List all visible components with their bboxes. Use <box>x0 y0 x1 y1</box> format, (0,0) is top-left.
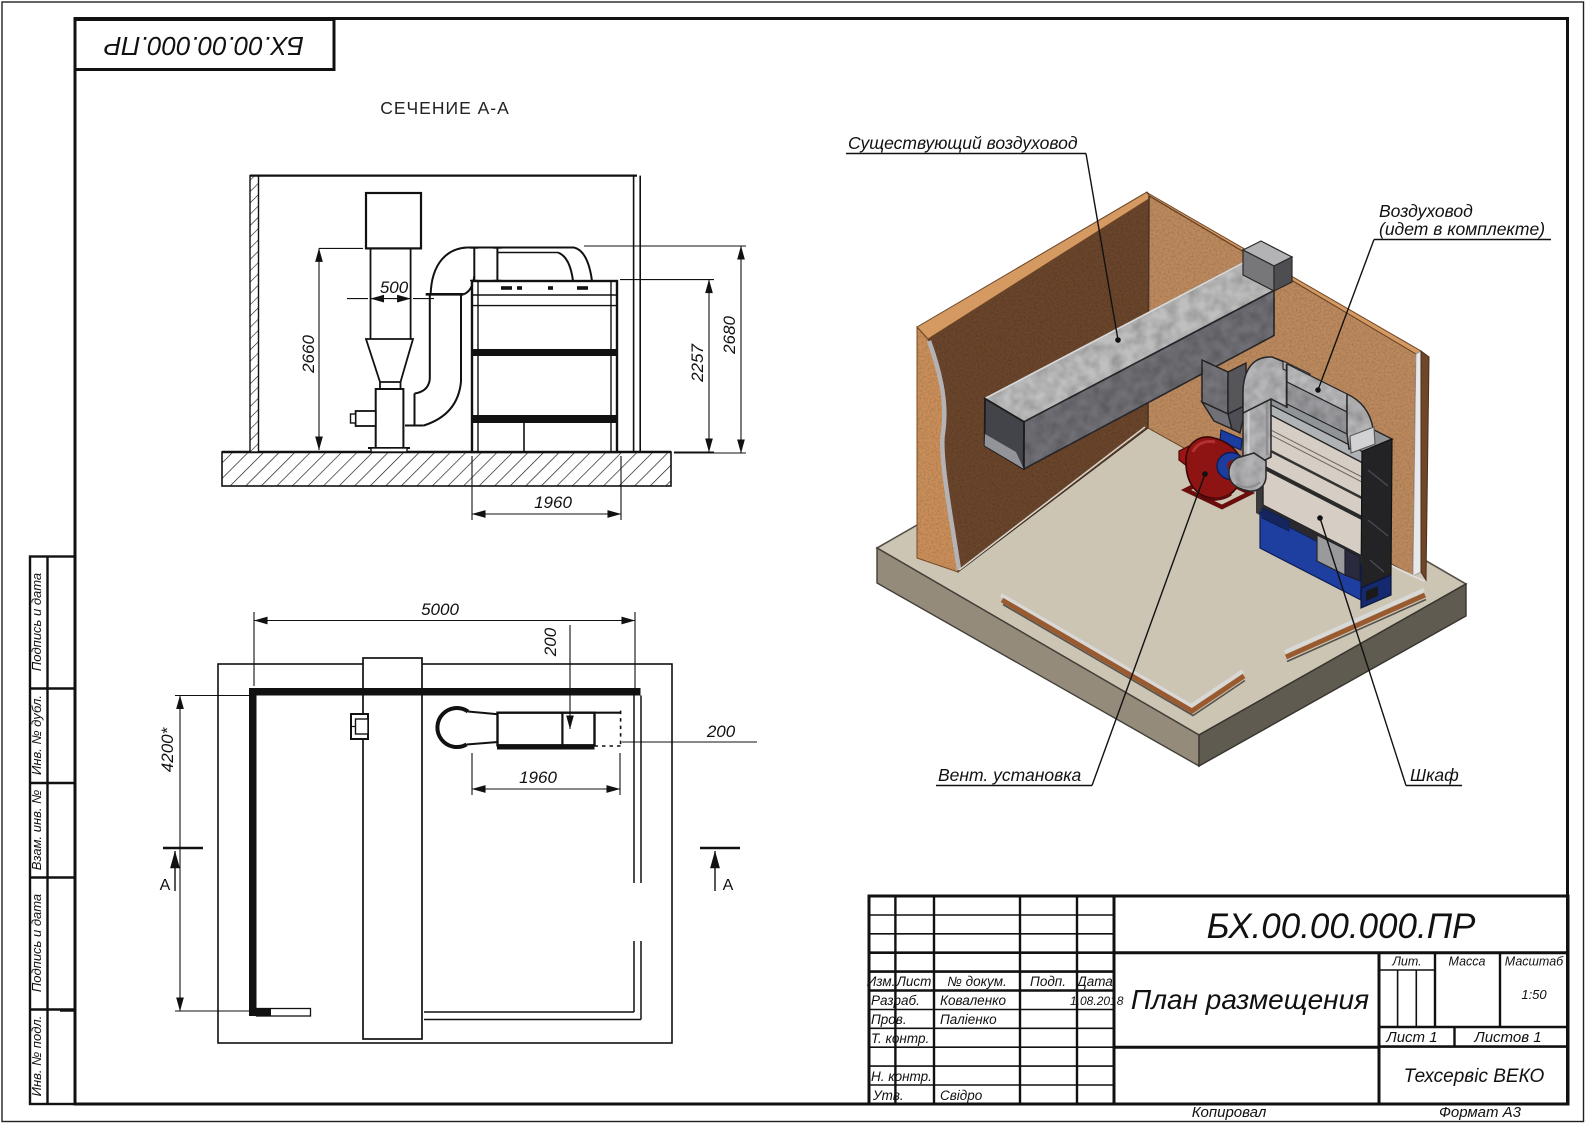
svg-text:Существующий воздуховод: Существующий воздуховод <box>848 133 1078 153</box>
svg-text:1960: 1960 <box>519 768 557 787</box>
svg-text:200: 200 <box>541 627 560 657</box>
svg-text:4200*: 4200* <box>158 726 177 772</box>
svg-text:200: 200 <box>706 722 736 741</box>
svg-text:Формат А3: Формат А3 <box>1439 1104 1522 1121</box>
svg-text:Подпись и дата: Подпись и дата <box>29 894 44 992</box>
svg-text:А: А <box>723 877 734 894</box>
svg-text:Шкаф: Шкаф <box>1410 765 1459 785</box>
svg-text:1.08.2018: 1.08.2018 <box>1070 994 1124 1008</box>
svg-text:500: 500 <box>380 278 409 297</box>
svg-text:1:50: 1:50 <box>1521 987 1547 1002</box>
svg-text:2680: 2680 <box>720 316 739 355</box>
svg-text:А: А <box>160 877 171 894</box>
svg-text:Взам. инв. №: Взам. инв. № <box>29 790 44 870</box>
svg-text:Лит.: Лит. <box>1391 955 1421 969</box>
svg-text:Техсервіс ВЕКО: Техсервіс ВЕКО <box>1404 1066 1545 1087</box>
svg-text:БХ.00.00.000.ПР: БХ.00.00.000.ПР <box>1207 907 1476 946</box>
svg-text:Паліенко: Паліенко <box>940 1012 997 1027</box>
svg-text:5000: 5000 <box>421 600 459 619</box>
svg-text:(идет в комплекте): (идет в комплекте) <box>1379 219 1545 239</box>
svg-text:Н. контр.: Н. контр. <box>871 1069 932 1084</box>
svg-text:Листов 1: Листов 1 <box>1473 1029 1541 1046</box>
svg-text:2660: 2660 <box>299 335 318 374</box>
svg-text:Вент. установка: Вент. установка <box>938 765 1082 785</box>
svg-text:Подп.: Подп. <box>1030 974 1066 989</box>
svg-text:Масштаб: Масштаб <box>1505 955 1564 969</box>
svg-text:1960: 1960 <box>534 493 572 512</box>
svg-text:БХ.00.00.000.ПР: БХ.00.00.000.ПР <box>103 31 303 61</box>
svg-text:Лист: Лист <box>896 974 932 989</box>
svg-text:Воздуховод: Воздуховод <box>1379 201 1473 221</box>
svg-text:Дата: Дата <box>1075 974 1113 989</box>
svg-text:Утв.: Утв. <box>872 1088 904 1103</box>
svg-text:Подпись и дата: Подпись и дата <box>29 573 44 671</box>
svg-text:Разраб.: Разраб. <box>871 993 920 1008</box>
svg-text:Инв. № подл.: Инв. № подл. <box>29 1016 44 1097</box>
svg-text:Т. контр.: Т. контр. <box>871 1031 929 1046</box>
svg-text:2257: 2257 <box>688 344 707 383</box>
svg-text:СЕЧЕНИЕ А-А: СЕЧЕНИЕ А-А <box>380 98 510 118</box>
svg-text:Инв. № дубл.: Инв. № дубл. <box>29 695 44 775</box>
svg-text:Лист 1: Лист 1 <box>1385 1029 1437 1046</box>
svg-text:Свідро: Свідро <box>940 1088 983 1103</box>
svg-text:Изм.: Изм. <box>867 974 896 989</box>
svg-text:План размещения: План размещения <box>1131 984 1369 1015</box>
svg-text:Коваленко: Коваленко <box>940 993 1006 1008</box>
svg-text:№ докум.: № докум. <box>947 974 1006 989</box>
svg-text:Пров.: Пров. <box>871 1012 907 1027</box>
svg-text:Копировал: Копировал <box>1192 1104 1267 1121</box>
svg-text:Масса: Масса <box>1449 955 1486 969</box>
